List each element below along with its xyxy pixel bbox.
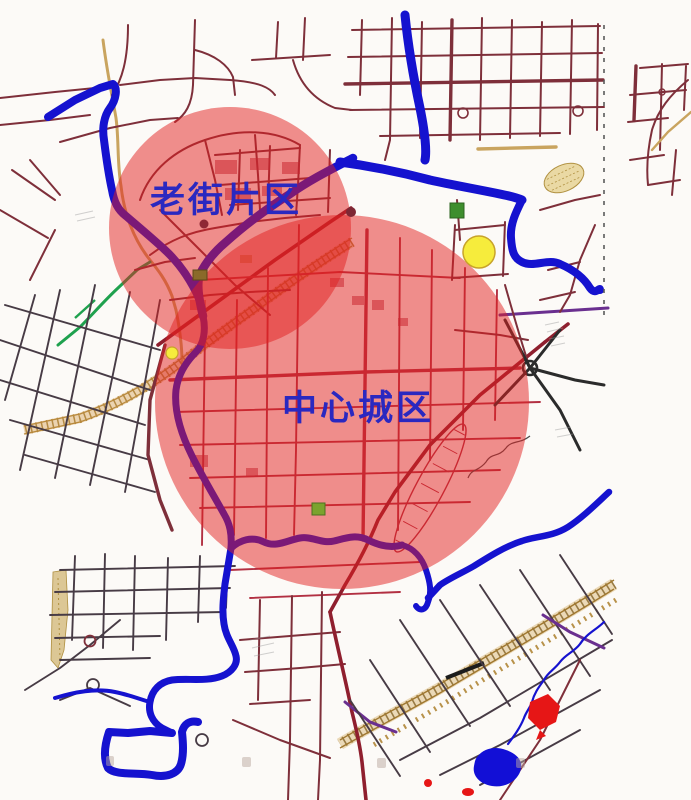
red-dot-landmark bbox=[346, 207, 356, 217]
faint-marks bbox=[106, 756, 525, 768]
sand-strip bbox=[51, 570, 68, 668]
railway-bottom-right bbox=[340, 580, 616, 748]
river-bottom-u bbox=[105, 721, 198, 775]
red-spot bbox=[462, 788, 474, 796]
label-central: 中心城区 bbox=[282, 389, 434, 429]
roads-right-sliver bbox=[628, 64, 691, 195]
planning-map: 老街片区 中心城区 bbox=[0, 0, 691, 800]
tan-road-topright bbox=[478, 147, 556, 149]
green-block-landmark bbox=[450, 203, 464, 218]
red-spot bbox=[424, 779, 432, 787]
hatched-oval bbox=[539, 157, 588, 198]
olive-block-landmark bbox=[312, 503, 325, 515]
roundabout bbox=[196, 734, 208, 746]
river-main-horizontal bbox=[340, 162, 522, 200]
stream-left bbox=[55, 690, 150, 702]
label-old-town: 老街片区 bbox=[150, 181, 302, 221]
river-loop bbox=[150, 548, 237, 733]
brown-block-landmark bbox=[193, 270, 207, 280]
roads-top-right bbox=[345, 18, 604, 160]
yellow-landmark-small bbox=[166, 347, 178, 359]
map-canvas: 老街片区 中心城区 bbox=[0, 0, 691, 800]
yellow-landmark-large bbox=[463, 236, 495, 268]
